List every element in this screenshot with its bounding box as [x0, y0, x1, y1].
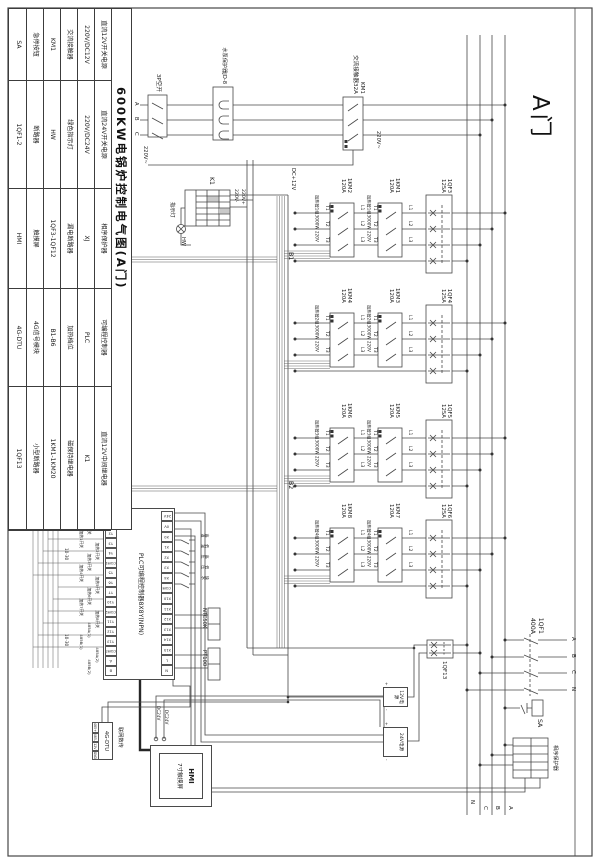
heater-group-note-1: 加热管2组3000W 220V [365, 305, 371, 357]
hmi-type: 7寸触摸屏 [175, 754, 182, 798]
heater-chain: 1QF3125A 1KM1120A 1KM2120A L1 L2 L3 T1 T… [270, 195, 600, 273]
plc-terminal: N [161, 665, 173, 675]
plc-terminal: Y13 [105, 636, 117, 646]
table-cell: 220V/DC24V [77, 81, 94, 189]
heater-group-note-1: 加热管1组3000W 220V [365, 195, 371, 247]
terminal-l1b: L1 [359, 205, 364, 210]
plc-terminal: X14 [161, 635, 173, 645]
plc-output-wire-labels: 水泵开关指示开关加热1开关加热2开关加热3开关加热4开关加热5开关加热6开关加热… [74, 506, 100, 678]
terminal-l2: L2 [407, 546, 412, 551]
plc-out-label: 485A(2) [95, 647, 100, 662]
terminal-l2: L2 [407, 446, 412, 451]
terminal-t3b: T3 [324, 237, 329, 243]
chain-relay2-label: 1KM2120A [340, 161, 352, 193]
terminal-t1: T1 [372, 530, 377, 536]
terminal-l2: L2 [407, 221, 412, 226]
table-cell: 交流接触器 [60, 9, 77, 81]
terminal-t1: T1 [372, 430, 377, 436]
terminal-t2: T2 [372, 546, 377, 552]
hmi-pwr-label-1: DC24V [163, 710, 168, 724]
terminal-l2b: L2 [359, 546, 364, 551]
table-cell: HW [43, 81, 60, 189]
plc-terminal: A [105, 656, 117, 666]
bundle-b1-label: B1 [286, 252, 294, 260]
dtu-pin: 12V [92, 742, 99, 751]
table-cell: 4G信号模块 [26, 289, 43, 387]
psu-24v-box: 24V电源 [383, 727, 408, 757]
bundle-b2-label: B2 [286, 481, 294, 489]
terminal-l3b: L3 [359, 562, 364, 567]
dtu-pin-strip: 485+485-12VGND [92, 722, 99, 760]
plc-out-label: 加热5开关 [94, 576, 100, 594]
component-table: 直流12V开关电源直流24V开关电源相序保护器可编程控制器直流12V中间继电器2… [8, 9, 111, 529]
chain-breaker-label: 1QF6125A [440, 486, 452, 518]
table-cell: 磁保持继电器 [60, 387, 77, 531]
plc-out-label: 加热6开关 [86, 587, 92, 605]
wire-tag-2: 10-30 [63, 634, 68, 646]
table-cell: SA [8, 9, 25, 81]
terminal-l3: L3 [407, 237, 412, 242]
chain-relay1-label: 1KM7120A [388, 486, 400, 518]
table-cell: 断路器 [26, 81, 43, 189]
heater-group-note-1: 加热管3组3000W 220V [365, 420, 371, 472]
heater-group-note-2: 加热管3组3000W 220V [313, 420, 319, 472]
plc-terminal: Y12 [105, 627, 117, 637]
table-cell: 1QF3-1QF12 [43, 189, 60, 289]
heater-chain: 1QF5125A 1KM5120A 1KM6120A L1 L2 L3 T1 T… [270, 420, 600, 498]
plc-out-label: 加热7开关 [78, 598, 84, 616]
plc-in-label: 缺水 [195, 576, 209, 581]
table-cell: 小型断路器 [26, 387, 43, 531]
hmi-pwr-label-2: DC24V [155, 706, 160, 720]
terminal-t2b: T2 [324, 331, 329, 337]
dtu-note: 联网数传 [117, 727, 123, 748]
plc-terminal: Y4 [105, 548, 117, 558]
table-cell: 绿色指示灯 [60, 81, 77, 189]
dtu-pin: GND [92, 751, 99, 760]
plc-out-label: 加热2开关 [94, 542, 100, 560]
table-cell: 220V/DC12V [77, 9, 94, 81]
chain-breaker-label: 1QF5125A [440, 386, 452, 418]
plc-terminal: X4 [161, 573, 173, 583]
table-cell: 1QF1-2 [8, 81, 25, 189]
plc-in-label: 高压 [195, 555, 209, 560]
table-cell: 1KM1-1KM20 [43, 387, 60, 531]
terminal-l3b: L3 [359, 237, 364, 242]
heater-chain: 1QF6125A 1KM7120A 1KM8120A L1 L2 L3 T1 T… [270, 520, 600, 598]
terminal-t3: T3 [372, 347, 377, 353]
terminal-t2b: T2 [324, 221, 329, 227]
pt100-sensor-label: PT100 [201, 650, 207, 666]
plc-out-label: 加热8开关 [94, 610, 100, 628]
terminal-l1: L1 [407, 205, 412, 210]
terminal-t1b: T1 [324, 430, 329, 436]
dtu-pin: 485+ [92, 722, 99, 733]
terminal-l3: L3 [407, 347, 412, 352]
heater-group-note-2: 加热管4组3000W 220V [313, 520, 319, 572]
table-cell: 触摸屏 [26, 189, 43, 289]
terminal-l3b: L3 [359, 462, 364, 467]
terminal-t1b: T1 [324, 315, 329, 321]
terminal-l3: L3 [407, 462, 412, 467]
table-cell: 直流12V中间继电器 [94, 387, 111, 531]
psu-12v-box: 12V电源 [383, 687, 408, 707]
plc-terminal: X11 [161, 604, 173, 614]
terminal-l1b: L1 [359, 530, 364, 535]
terminal-t1: T1 [372, 315, 377, 321]
plc-terminal: 24V [161, 511, 173, 521]
plc-label: PLC可编程控制器8X8Y(NPN) [136, 509, 144, 679]
plc-terminal: X15 [161, 645, 173, 655]
plc-terminal: 0V [161, 521, 173, 531]
terminal-l1b: L1 [359, 315, 364, 320]
terminal-l2: L2 [407, 331, 412, 336]
plc-terminal: X12 [161, 614, 173, 624]
terminal-t1b: T1 [324, 205, 329, 211]
chain-relay1-label: 1KM3120A [388, 271, 400, 303]
plc-terminal: Y3 [105, 538, 117, 548]
plc-terminal: X10 [161, 593, 173, 603]
plc-out-label: 485B(2) [87, 659, 92, 674]
plc-terminal: B [105, 666, 117, 676]
dtu-name: 4G-DTU [103, 723, 109, 759]
table-cell: HMI [8, 189, 25, 289]
table-cell: K1 [77, 387, 94, 531]
heater-group-note-1: 加热管4组3000W 220V [365, 520, 371, 572]
table-cell: 1QF13 [8, 387, 25, 531]
terminal-t3b: T3 [324, 562, 329, 568]
table-cell: 直流12V开关电源 [94, 9, 111, 81]
heater-group-note-2: 加热管1组3000W 220V [313, 195, 319, 247]
plc-terminal: Y10 [105, 597, 117, 607]
scanned-schematic-page: A门 A B C N 1QF1400A SA 相序保护器 A B C N KM1… [0, 0, 600, 864]
title-block-table: 600KW电锅炉控制电气图(A门) 直流12V开关电源直流24V开关电源相序保护… [8, 8, 132, 530]
terminal-t3: T3 [372, 237, 377, 243]
terminal-t2: T2 [372, 446, 377, 452]
plc-terminal: X13 [161, 624, 173, 634]
ntc-sensor-label: NTC50K [201, 608, 207, 628]
terminal-l1: L1 [407, 430, 412, 435]
plc-out-label: 加热1开关 [78, 530, 84, 548]
heater-group-note-2: 加热管2组3000W 220V [313, 305, 319, 357]
plc-in-label: 低压 [195, 566, 209, 571]
table-cell: 漏电断路器 [60, 189, 77, 289]
plc-input-terminals: 24V0VX0X1X2X3X4COMX10X11X12X13X14X15LN [161, 511, 173, 676]
terminal-l1b: L1 [359, 430, 364, 435]
plc-out-label: 485B(1) [79, 634, 84, 649]
wire-tag-1: 10-30 [63, 548, 68, 560]
terminal-t3b: T3 [324, 347, 329, 353]
chain-relay1-label: 1KM1120A [388, 161, 400, 193]
chain-breaker-label: 1QF4125A [440, 271, 452, 303]
table-cell: 相序保护器 [94, 189, 111, 289]
plc-terminal: X2 [161, 552, 173, 562]
plc-output-terminals: Y0Y1Y2Y3Y4COM1Y5Y6Y7Y10COM2Y11Y12Y13COM3… [105, 509, 117, 676]
plc-out-label: 加热3开关 [86, 553, 92, 571]
terminal-t2b: T2 [324, 546, 329, 552]
terminal-l2b: L2 [359, 221, 364, 226]
terminal-t1: T1 [372, 205, 377, 211]
table-cell: B1-B6 [43, 289, 60, 387]
terminal-t3: T3 [372, 462, 377, 468]
psu24-plus: + [383, 722, 388, 726]
heater-chain: 1QF4125A 1KM3120A 1KM4120A L1 L2 L3 T1 T… [270, 305, 600, 383]
terminal-l1: L1 [407, 530, 412, 535]
plc-terminal: X3 [161, 562, 173, 572]
table-cell: PLC [77, 289, 94, 387]
chain-relay2-label: 1KM4120A [340, 271, 352, 303]
psu12-minus: - [383, 709, 388, 711]
psu24-minus: - [383, 759, 388, 761]
plc-out-label: 加热4开关 [78, 564, 84, 582]
plc-terminal: Y7 [105, 587, 117, 597]
plc-terminal: X0 [161, 532, 173, 542]
terminal-t1b: T1 [324, 530, 329, 536]
chain-breaker-label: 1QF3125A [440, 161, 452, 193]
psu-12v-label: 12V电源 [392, 688, 403, 706]
chain-relay2-label: 1KM6120A [340, 386, 352, 418]
plc-terminal: L [161, 655, 173, 665]
table-cell: 4G-DTU [8, 289, 25, 387]
table-cell: 直流24V开关电源 [94, 81, 111, 189]
plc-out-label: 485A(1) [87, 622, 92, 637]
plc-terminal: Y11 [105, 617, 117, 627]
dtu-pin: 485- [92, 733, 99, 742]
plc-in-label: 高温 [195, 534, 209, 539]
terminal-l3: L3 [407, 562, 412, 567]
plc-terminal: COM3 [105, 646, 117, 656]
terminal-t2: T2 [372, 331, 377, 337]
drawing-title: 600KW电锅炉控制电气图(A门) [111, 9, 131, 529]
table-cell: KM1 [43, 9, 60, 81]
terminal-l2b: L2 [359, 331, 364, 336]
table-cell: 急停按钮 [26, 9, 43, 81]
table-cell: 加热档位 [60, 289, 77, 387]
chain-relay2-label: 1KM8120A [340, 486, 352, 518]
qf13-label: 1QF13 [440, 661, 447, 679]
psu-24v-label: 24V电源 [398, 728, 403, 756]
terminal-l3b: L3 [359, 347, 364, 352]
terminal-t2b: T2 [324, 446, 329, 452]
terminal-t3: T3 [372, 562, 377, 568]
psu12-plus: + [383, 682, 388, 686]
plc-terminal: COM2 [105, 607, 117, 617]
plc-in-label: 低温 [195, 545, 209, 550]
terminal-t3b: T3 [324, 462, 329, 468]
table-cell: XJ [77, 189, 94, 289]
terminal-l2b: L2 [359, 446, 364, 451]
hmi-name: HMI [186, 754, 195, 798]
plc-terminal: Y6 [105, 578, 117, 588]
plc-terminal: COM1 [105, 558, 117, 568]
plc-terminal: X1 [161, 542, 173, 552]
plc-input-wire-labels: 高温低温高压低压缺水 [195, 534, 209, 581]
chain-relay1-label: 1KM5120A [388, 386, 400, 418]
plc-terminal: Y5 [105, 568, 117, 578]
terminal-l1: L1 [407, 315, 412, 320]
terminal-t2: T2 [372, 221, 377, 227]
landscape-drawing: A门 A B C N 1QF1400A SA 相序保护器 A B C N KM1… [0, 0, 600, 864]
plc-terminal: COM [161, 583, 173, 593]
hmi-screen-box: HMI 7寸触摸屏 [159, 753, 203, 799]
table-cell: 可编程控制器 [94, 289, 111, 387]
